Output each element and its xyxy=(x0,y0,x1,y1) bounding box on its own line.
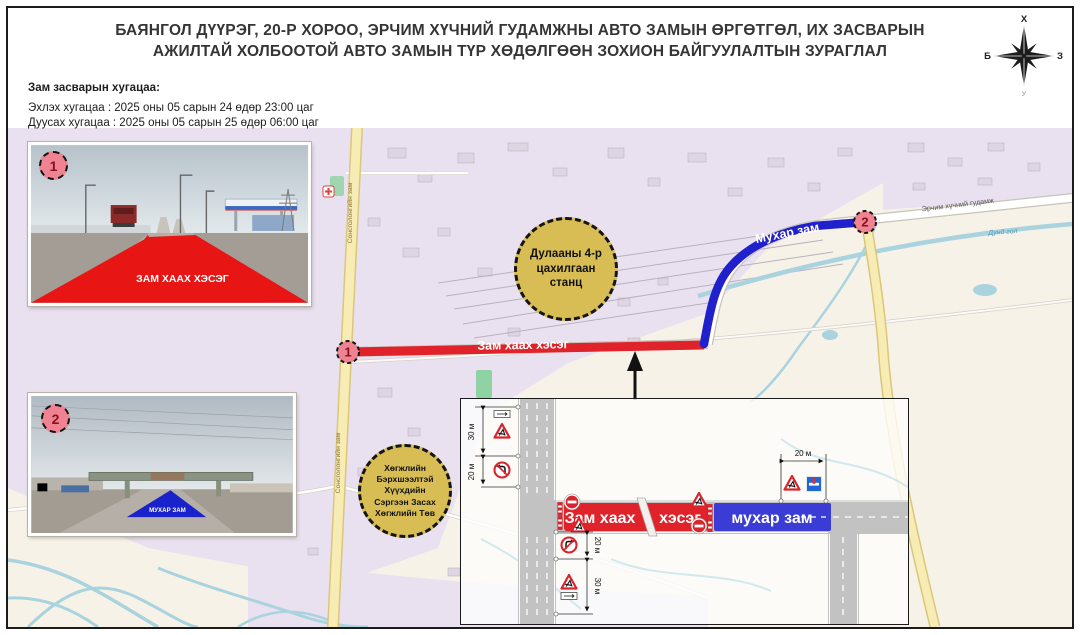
street-label-songolon-1: Сонсголонгийн зам xyxy=(346,182,354,243)
schedule-start: Эхлэх хугацаа : 2025 оны 05 сарын 24 өдө… xyxy=(28,101,319,116)
page-title-line2: АЖИЛТАЙ ХОЛБООТОЙ АВТО ЗАМЫН ТҮР ХӨДӨЛГӨ… xyxy=(90,41,950,62)
schedule-heading: Зам засварын хугацаа: xyxy=(28,82,319,94)
dim-label-20m-top: 20 м xyxy=(467,464,476,481)
truck xyxy=(111,205,137,227)
dim-label-30m-bottom: 30 м xyxy=(593,578,602,595)
photo-2-overlay-label: МУХАР ЗАМ xyxy=(149,507,186,514)
roadworks-sign xyxy=(562,575,577,589)
photo-1-overlay-label: ЗАМ ХААХ ХЭСЭГ xyxy=(136,274,229,285)
photo-closed-section: ЗАМ ХААХ ХЭСЭГ 1 xyxy=(28,142,311,306)
page-title: БАЯНГОЛ ДҮҮРЭГ, 20-Р ХОРОО, ЭРЧИМ ХҮЧНИЙ… xyxy=(90,20,950,62)
photo-1-scene: ЗАМ ХААХ ХЭСЭГ xyxy=(31,145,308,303)
poi-rehab-line-1: Хөгжлийн xyxy=(374,463,435,474)
map-canvas: Сонсголонгийн зам Сонсголонгийн зам Эрчи… xyxy=(8,128,1072,627)
poi-power-station: Дулааны 4-р цахилгаан станц xyxy=(514,217,618,321)
poi-rehab-line-4: Сэргээн Засах xyxy=(374,497,435,508)
compass-rose: Х Б З У xyxy=(984,12,1064,98)
roadworks-sign xyxy=(785,476,800,490)
photo-2-badge: 2 xyxy=(41,404,70,433)
photo-dead-end: МУХАР ЗАМ 2 xyxy=(28,393,296,536)
no-right-turn-sign xyxy=(562,538,577,553)
poi-rehab-line-5: Хөгжлийн Төв xyxy=(374,508,435,519)
map-marker-2: 2 xyxy=(854,211,876,233)
photo-2-badge-number: 2 xyxy=(52,411,60,427)
no-entry-sign xyxy=(691,518,707,534)
roadworks-sign xyxy=(692,493,707,507)
roadworks-sign xyxy=(495,424,510,438)
poi-rehab-center-label: Хөгжлийн Бэрхшээлтэй Хүүхдийн Сэргээн За… xyxy=(374,463,435,519)
dead-end-sign xyxy=(807,477,822,492)
photo-1-badge: 1 xyxy=(39,151,68,180)
dim-label-20m-right: 20 м xyxy=(795,449,812,458)
scheme-dead-end-label: мухар зам xyxy=(731,510,812,527)
map-marker-1-number: 1 xyxy=(344,345,351,360)
compass-east-label: З xyxy=(1057,51,1063,62)
photo-2-scene: МУХАР ЗАМ xyxy=(31,396,293,533)
no-left-turn-sign xyxy=(495,463,510,478)
page-title-line1: БАЯНГОЛ ДҮҮРЭГ, 20-Р ХОРОО, ЭРЧИМ ХҮЧНИЙ… xyxy=(90,20,950,41)
hospital-icon xyxy=(323,186,334,197)
photo-1-badge-number: 1 xyxy=(50,158,58,174)
poi-rehab-line-2: Бэрхшээлтэй xyxy=(374,474,435,485)
distance-plate xyxy=(561,593,577,600)
traffic-scheme-inset: Зам хаах хэсэг мухар зам xyxy=(460,398,909,625)
compass-north-label: Х xyxy=(1021,14,1028,25)
compass-south-label: У xyxy=(1022,89,1027,98)
distance-plate xyxy=(494,411,510,418)
traffic-scheme: Зам хаах хэсэг мухар зам xyxy=(461,399,908,624)
map-marker-1: 1 xyxy=(337,341,359,363)
poi-power-station-label: Дулааны 4-р цахилгаан станц xyxy=(524,247,608,290)
schedule-end: Дуусах хугацаа : 2025 оны 05 сарын 25 өд… xyxy=(28,116,319,131)
poi-rehab-center: Хөгжлийн Бэрхшээлтэй Хүүхдийн Сэргээн За… xyxy=(358,444,452,538)
compass-west-label: Б xyxy=(984,51,991,62)
poi-rehab-line-3: Хүүхдийн xyxy=(374,485,435,496)
closed-route-label: Зам хаах хэсэг xyxy=(477,337,569,353)
repair-schedule: Зам засварын хугацаа: Эхлэх хугацаа : 20… xyxy=(28,82,319,131)
dim-label-30m-top: 30 м xyxy=(467,424,476,441)
dim-label-20m-bottom: 20 м xyxy=(593,537,602,554)
street-label-songolon-2: Сонсголонгийн зам xyxy=(334,432,342,493)
map-marker-2-number: 2 xyxy=(861,215,868,230)
no-entry-sign xyxy=(564,494,580,510)
